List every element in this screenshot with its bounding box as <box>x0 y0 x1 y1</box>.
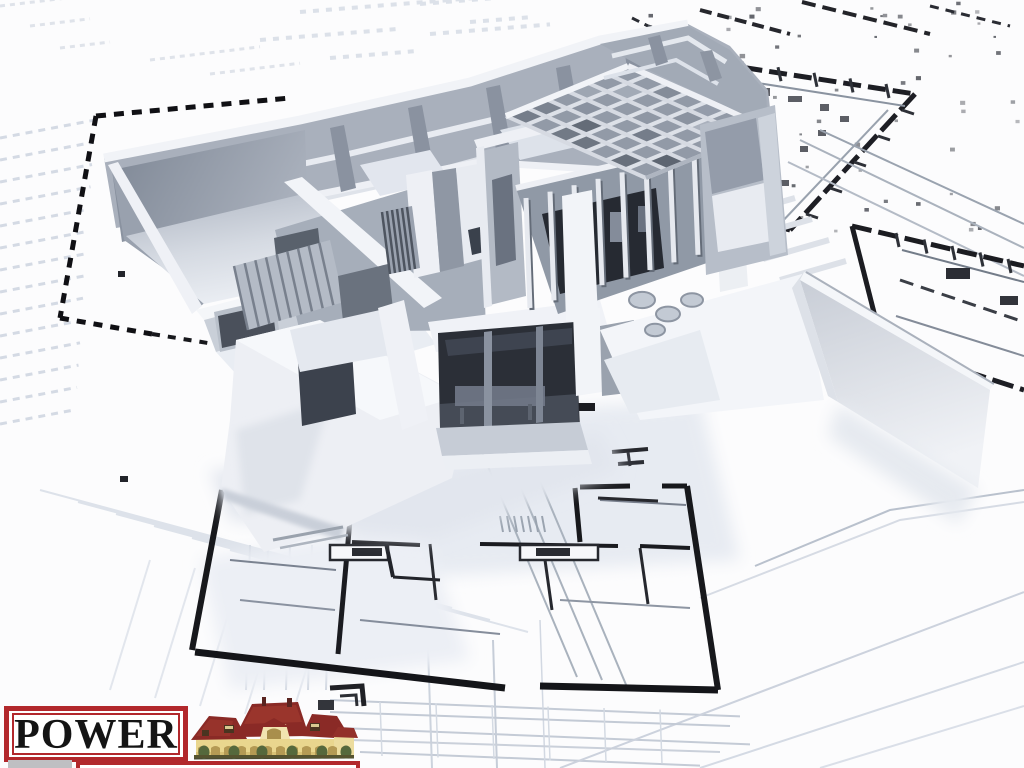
svg-text:POWER: POWER <box>14 712 178 758</box>
